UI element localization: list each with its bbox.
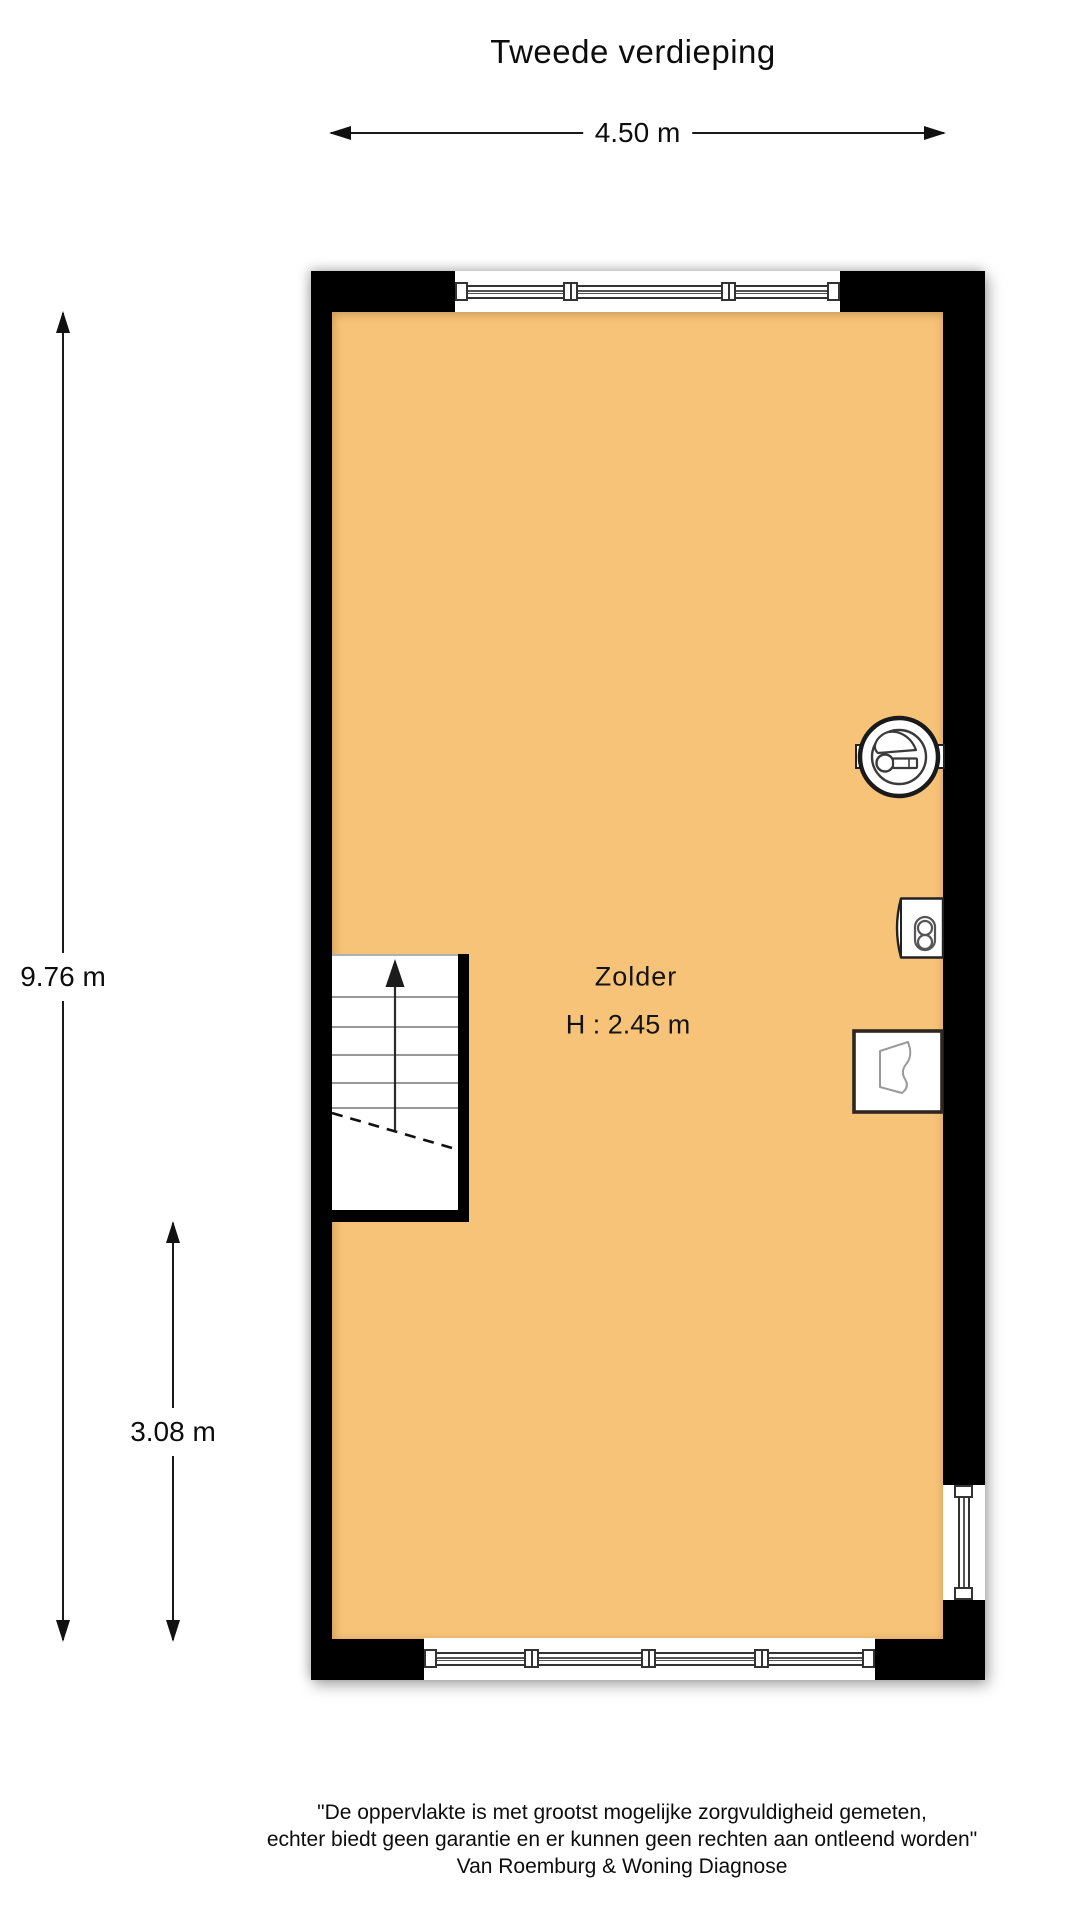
window-frame-cap <box>862 1649 875 1668</box>
staircase <box>332 954 469 1222</box>
arrow-down-icon <box>56 1620 70 1642</box>
window-glazing <box>958 1486 970 1599</box>
window-mullion <box>563 282 578 301</box>
window-frame-cap <box>424 1649 437 1668</box>
washbasin-icon <box>852 1029 944 1114</box>
disclaimer-line-2: echter biedt geen garantie en er kunnen … <box>190 1826 1054 1853</box>
arrow-right-icon <box>924 126 946 140</box>
footer-disclaimer: "De oppervlakte is met grootst mogelijke… <box>190 1799 1054 1880</box>
company-name: Van Roemburg & Woning Diagnose <box>190 1853 1054 1880</box>
dimension-height-total-label: 9.76 m <box>16 953 110 1001</box>
arrow-left-icon <box>329 126 351 140</box>
ventilation-fan-icon <box>855 714 947 806</box>
dimension-height-lower-label: 3.08 m <box>126 1408 220 1456</box>
window-mullion <box>754 1649 769 1668</box>
dimension-width: 4.50 m <box>330 126 945 140</box>
window-frame-cap <box>455 282 468 301</box>
arrow-up-icon <box>166 1221 180 1243</box>
disclaimer-line-1: "De oppervlakte is met grootst mogelijke… <box>190 1799 1054 1826</box>
window-mullion <box>641 1649 656 1668</box>
room-name-label: Zolder <box>595 962 678 993</box>
dimension-width-label: 4.50 m <box>583 115 693 151</box>
window-frame-cap <box>954 1587 973 1600</box>
window-bottom <box>424 1638 875 1680</box>
stair-wall-bottom <box>332 1210 469 1222</box>
window-frame-cap <box>954 1485 973 1498</box>
window-mullion <box>524 1649 539 1668</box>
room-ceiling-height-label: H : 2.45 m <box>566 1010 691 1041</box>
arrow-down-icon <box>166 1620 180 1642</box>
window-glazing <box>456 285 839 299</box>
floorplan-page: Tweede verdieping 4.50 m 9.76 m 3.08 m <box>0 0 1080 1920</box>
stairwell-floor <box>332 954 469 1222</box>
boiler-icon <box>892 897 944 959</box>
page-title: Tweede verdieping <box>490 33 776 71</box>
window-right <box>943 1485 985 1600</box>
window-top <box>455 271 840 312</box>
dimension-height-lower: 3.08 m <box>166 1222 180 1641</box>
arrow-up-icon <box>56 311 70 333</box>
stair-wall-right <box>458 954 469 1222</box>
window-frame-cap <box>827 282 840 301</box>
dimension-height-total: 9.76 m <box>56 312 70 1641</box>
window-mullion <box>721 282 736 301</box>
